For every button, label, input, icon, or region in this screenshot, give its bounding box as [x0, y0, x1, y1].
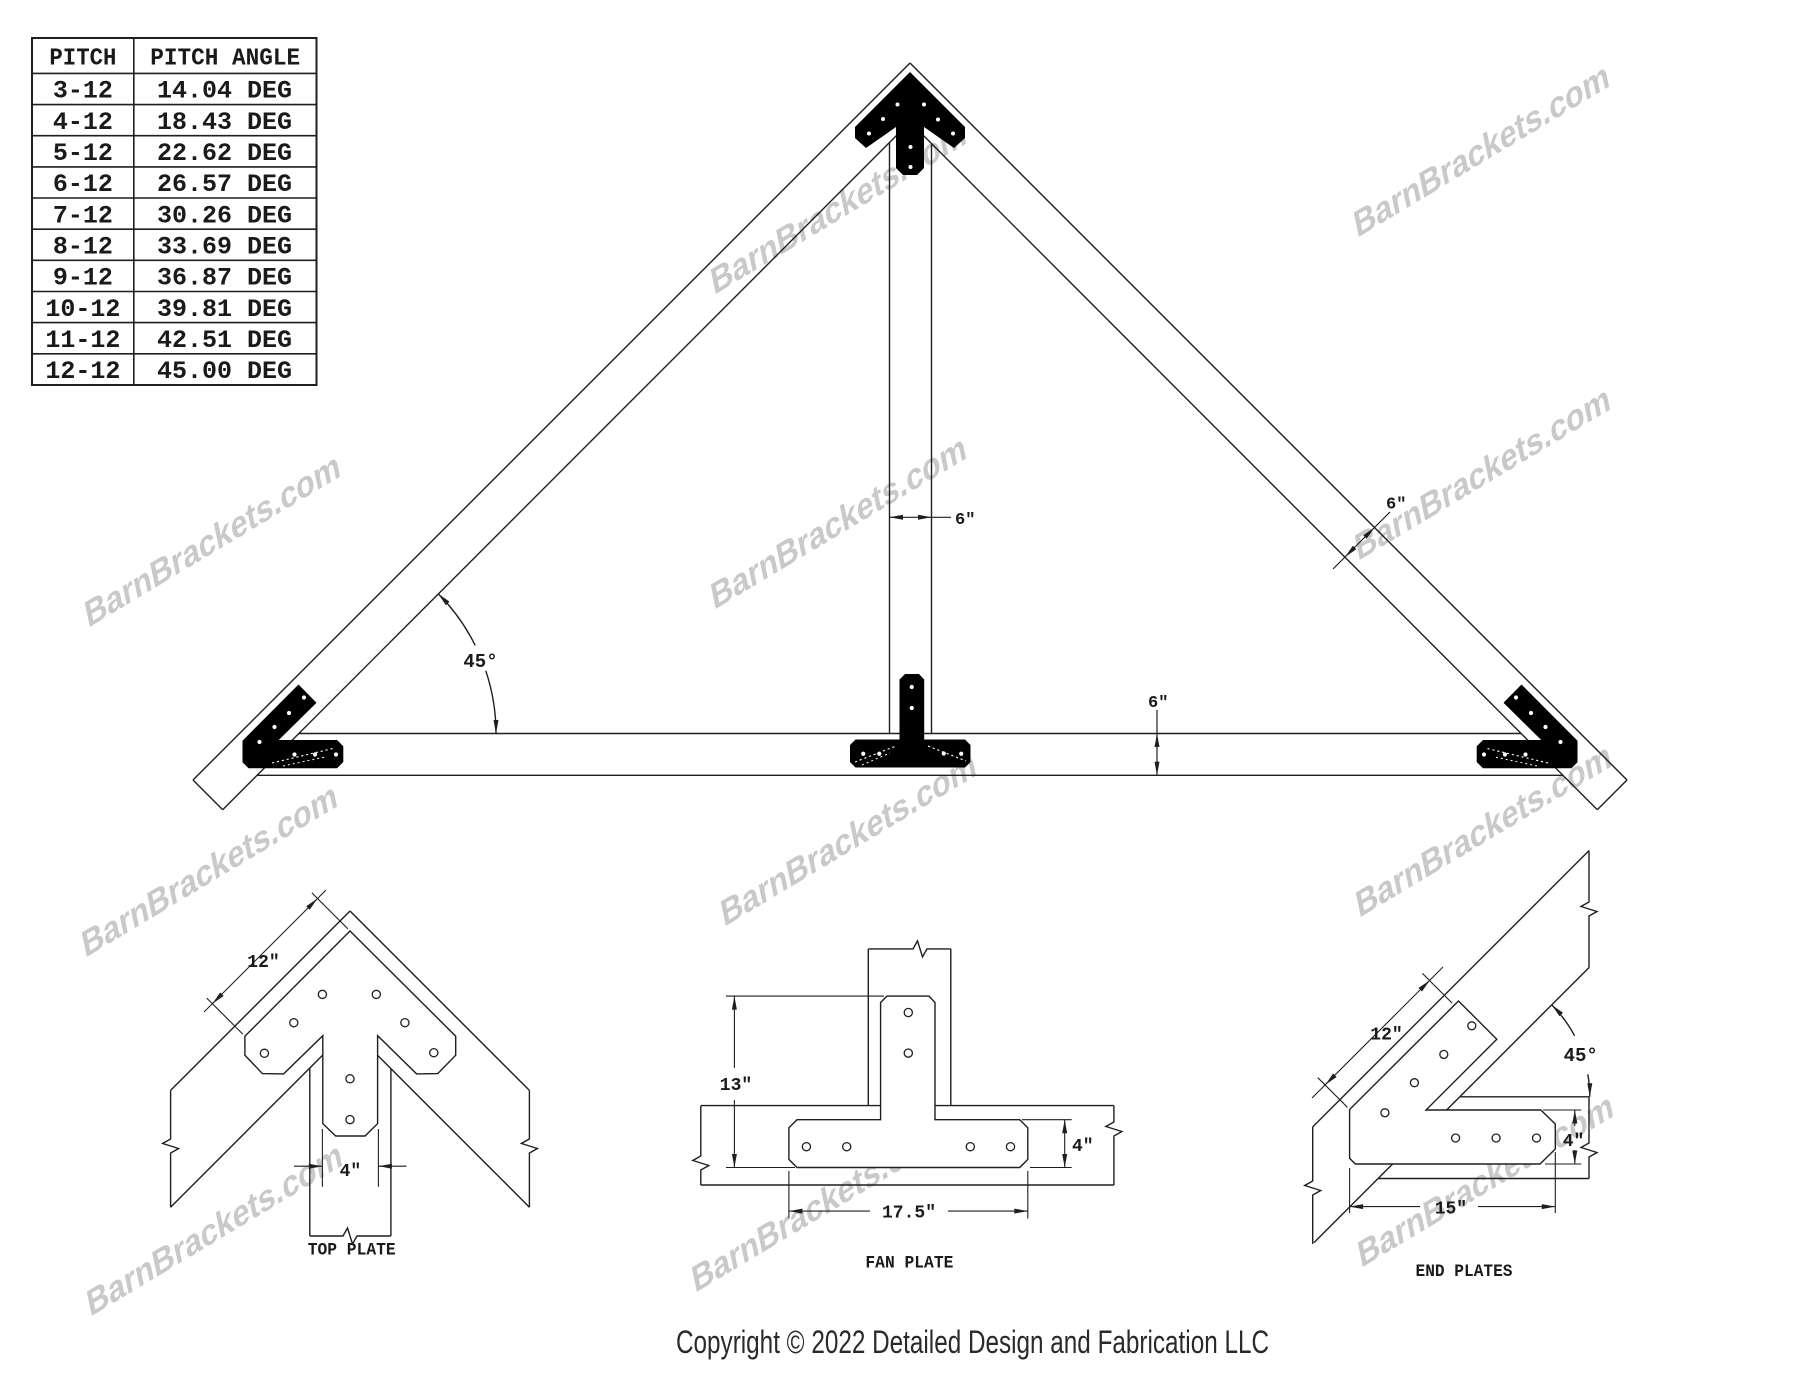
svg-text:3-12: 3-12 — [53, 77, 113, 106]
svg-text:11-12: 11-12 — [45, 326, 120, 355]
svg-text:END PLATES: END PLATES — [1416, 1262, 1513, 1282]
svg-text:4": 4" — [340, 1162, 362, 1182]
svg-text:45°: 45° — [1564, 1045, 1598, 1067]
svg-text:4": 4" — [1563, 1132, 1585, 1152]
svg-text:17.5": 17.5" — [882, 1204, 936, 1224]
svg-text:12-12: 12-12 — [45, 357, 120, 386]
svg-text:22.62 DEG: 22.62 DEG — [157, 139, 292, 168]
svg-text:10-12: 10-12 — [45, 295, 120, 324]
svg-text:6-12: 6-12 — [53, 170, 113, 199]
svg-text:6": 6" — [955, 511, 975, 530]
svg-text:26.57 DEG: 26.57 DEG — [157, 170, 292, 199]
svg-text:PITCH: PITCH — [49, 46, 116, 73]
svg-text:12": 12" — [247, 953, 279, 973]
svg-text:15": 15" — [1435, 1200, 1467, 1220]
svg-text:FAN PLATE: FAN PLATE — [865, 1254, 953, 1274]
svg-text:45°: 45° — [463, 651, 497, 673]
svg-text:14.04 DEG: 14.04 DEG — [157, 77, 292, 106]
svg-text:33.69 DEG: 33.69 DEG — [157, 233, 292, 262]
svg-text:6": 6" — [1386, 496, 1406, 515]
svg-text:45.00 DEG: 45.00 DEG — [157, 357, 292, 386]
svg-text:13": 13" — [720, 1076, 752, 1096]
svg-text:TOP PLATE: TOP PLATE — [308, 1241, 396, 1261]
svg-text:18.43 DEG: 18.43 DEG — [157, 108, 292, 137]
svg-text:4": 4" — [1072, 1137, 1094, 1157]
svg-text:8-12: 8-12 — [53, 233, 113, 262]
svg-text:12": 12" — [1370, 1026, 1402, 1046]
svg-text:5-12: 5-12 — [53, 139, 113, 168]
svg-text:PITCH ANGLE: PITCH ANGLE — [150, 46, 300, 73]
svg-text:4-12: 4-12 — [53, 108, 113, 137]
svg-text:42.51 DEG: 42.51 DEG — [157, 326, 292, 355]
svg-text:36.87 DEG: 36.87 DEG — [157, 264, 292, 293]
svg-text:Copyright © 2022 Detailed Desi: Copyright © 2022 Detailed Design and Fab… — [676, 1324, 1269, 1360]
svg-text:7-12: 7-12 — [53, 201, 113, 230]
svg-text:30.26 DEG: 30.26 DEG — [157, 201, 292, 230]
svg-text:39.81 DEG: 39.81 DEG — [157, 295, 292, 324]
svg-text:9-12: 9-12 — [53, 264, 113, 293]
svg-text:6": 6" — [1148, 694, 1168, 713]
